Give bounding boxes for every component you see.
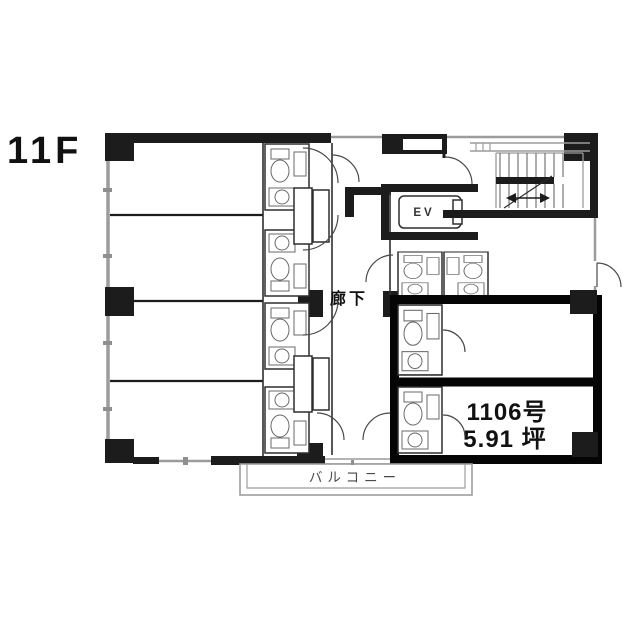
door-arc-corridor-top xyxy=(332,155,359,182)
door-arc-corridor-balcony xyxy=(363,413,390,440)
column-top-left xyxy=(105,133,134,161)
pipe-shaft-inner xyxy=(403,139,442,150)
window-tick-4 xyxy=(103,407,112,411)
column-bottom-left xyxy=(105,439,134,463)
window-tick-3 xyxy=(103,341,112,345)
right-hall xyxy=(398,252,488,298)
floorplan-svg: 廊下 EV xyxy=(0,0,630,630)
bathroom-1106 xyxy=(398,387,442,453)
balcony-label: バルコニー xyxy=(309,470,401,485)
column-unit-se xyxy=(572,432,598,457)
bathroom-upper-room xyxy=(398,305,442,375)
wall-stub-ev-hall-v xyxy=(345,187,354,217)
bathroom-hall-left xyxy=(398,252,442,298)
column-left-mid xyxy=(105,287,134,316)
door-arc-ev-hall xyxy=(445,157,472,184)
highlighted-unit-1106: 1106号 5.91 坪 xyxy=(390,290,602,460)
stair-arrow-left-icon xyxy=(506,193,516,203)
balcony-center-tick xyxy=(351,460,354,465)
corridor-label: 廊下 xyxy=(330,289,368,308)
unit-number: 1106号 xyxy=(466,399,547,426)
floorplan-canvas: 11F xyxy=(0,0,630,630)
door-arc-1106-bathroom xyxy=(443,415,465,437)
door-arc-exterior xyxy=(597,263,621,287)
elevator-label: EV xyxy=(413,207,434,219)
window-tick-2 xyxy=(103,254,112,258)
closet-ab-1 xyxy=(294,188,312,244)
closet-ab-2 xyxy=(313,190,329,242)
unit-area: 5.91 坪 xyxy=(463,426,546,453)
column-unit-ne xyxy=(570,290,597,314)
closet-cd-2 xyxy=(313,358,329,410)
bathroom-hall-right xyxy=(444,252,488,298)
door-arc-unit-d xyxy=(317,413,344,440)
bottom-wall-black-seg1 xyxy=(133,457,159,464)
balcony: バルコニー xyxy=(240,460,472,495)
door-arc-upper-bathroom xyxy=(443,330,465,352)
closet-cd-1 xyxy=(294,356,312,412)
window-tick-5 xyxy=(183,457,188,465)
stair-bottom-wall xyxy=(443,210,597,218)
top-wall-left-segment xyxy=(105,133,331,143)
door-arc-hall-unit xyxy=(366,255,393,282)
window-tick-1 xyxy=(103,188,112,192)
column-top-right xyxy=(564,133,597,161)
